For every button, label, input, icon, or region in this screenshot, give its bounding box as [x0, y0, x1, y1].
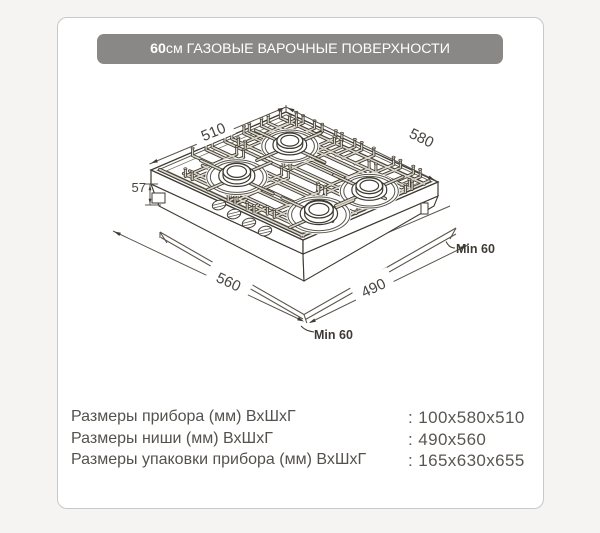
- svg-text:57: 57: [132, 180, 146, 195]
- svg-text:Min 60: Min 60: [456, 242, 495, 256]
- svg-text:Min 60: Min 60: [314, 328, 353, 342]
